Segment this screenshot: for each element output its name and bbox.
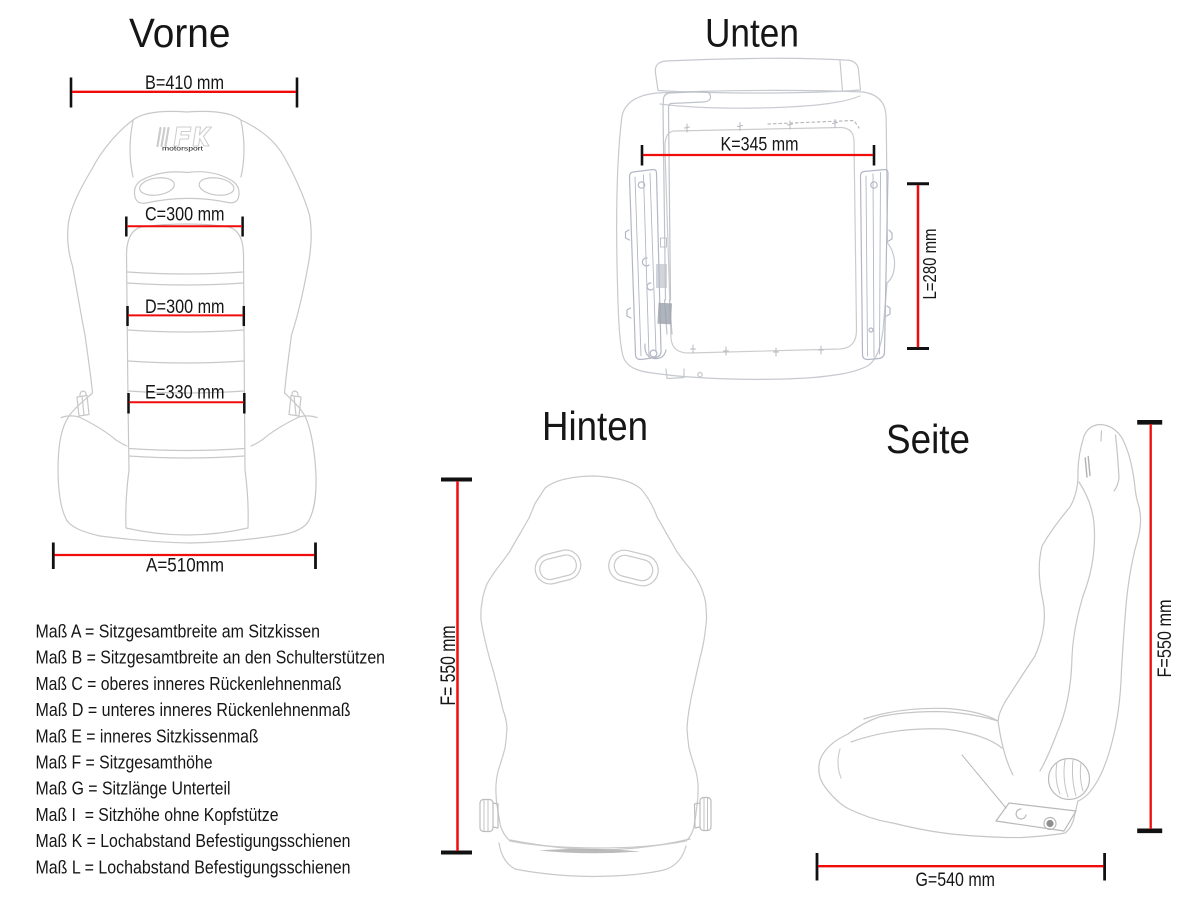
svg-text:Maß E = inneres Sitzkissenmaß: Maß E = inneres Sitzkissenmaß — [36, 725, 259, 746]
svg-text:A=510mm: A=510mm — [146, 556, 224, 577]
svg-text:L=280 mm: L=280 mm — [920, 229, 940, 300]
svg-text:Seite: Seite — [886, 416, 970, 462]
svg-text:F=550 mm: F=550 mm — [1155, 600, 1176, 678]
svg-text:Maß L = Lochabstand Befestigun: Maß L = Lochabstand Befestigungsschienen — [36, 856, 351, 877]
svg-text:Maß C = oberes inneres Rückenl: Maß C = oberes inneres Rückenlehnenmaß — [36, 673, 342, 694]
svg-text:Maß B = Sitzgesamtbreite an de: Maß B = Sitzgesamtbreite an den Schulter… — [36, 647, 386, 668]
svg-text:Vorne: Vorne — [129, 10, 231, 56]
svg-text:D=300 mm: D=300 mm — [145, 297, 225, 318]
svg-text:Maß F = Sitzgesamthöhe: Maß F = Sitzgesamthöhe — [36, 752, 213, 773]
svg-text:F= 550 mm: F= 550 mm — [437, 626, 460, 706]
svg-text:Maß D = unteres inneres Rücken: Maß D = unteres inneres Rückenlehnenmaß — [36, 699, 351, 720]
svg-text:Maß G = Sitzlänge Unterteil: Maß G = Sitzlänge Unterteil — [36, 778, 231, 799]
svg-text:Maß I = Sitzhöhe ohne Kopfstü: Maß I = Sitzhöhe ohne Kopfstütze — [36, 804, 279, 825]
svg-text:C=300 mm: C=300 mm — [145, 205, 225, 226]
svg-text:E=330 mm: E=330 mm — [145, 383, 225, 404]
svg-text:Unten: Unten — [705, 12, 799, 56]
svg-text:G=540 mm: G=540 mm — [916, 870, 996, 891]
svg-text:Hinten: Hinten — [542, 403, 648, 449]
svg-text:Maß A = Sitzgesamtbreite am Si: Maß A = Sitzgesamtbreite am Sitzkissen — [36, 621, 321, 642]
svg-text:K=345 mm: K=345 mm — [721, 135, 799, 156]
svg-text:motorsport: motorsport — [162, 147, 203, 153]
svg-text:Maß K = Lochabstand Befestigun: Maß K = Lochabstand Befestigungsschienen — [36, 830, 351, 851]
svg-text:B=410 mm: B=410 mm — [145, 73, 224, 94]
